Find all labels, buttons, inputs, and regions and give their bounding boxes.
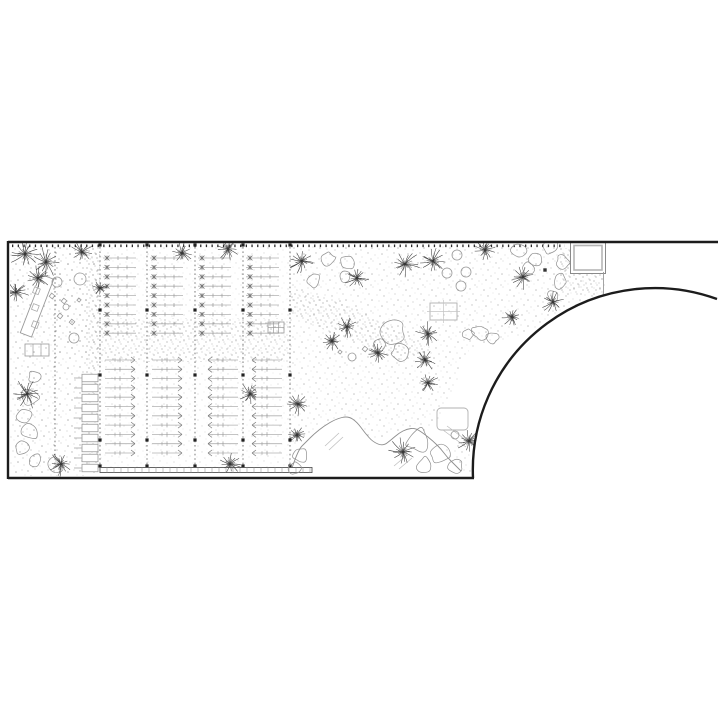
guide-post-node <box>98 438 101 441</box>
palm-trunk-center <box>522 276 524 278</box>
palm-trunk-center <box>552 301 554 303</box>
guide-post-node <box>145 243 148 246</box>
palm-trunk-center <box>296 434 298 436</box>
guide-post-node <box>98 308 101 311</box>
palm-trunk-center <box>249 393 251 395</box>
marker-square <box>543 268 546 271</box>
planter-box <box>82 384 98 392</box>
planter-box <box>82 444 98 452</box>
palm-trunk-center <box>404 263 406 265</box>
palm-trunk-center <box>427 333 429 335</box>
planter-box <box>82 374 98 382</box>
palm-trunk-center <box>331 340 333 342</box>
palm-trunk-center <box>81 251 83 253</box>
palm-trunk-center <box>60 463 62 465</box>
palm-trunk-center <box>24 253 26 255</box>
boardwalk-bar <box>100 468 312 473</box>
planter-box <box>82 394 98 402</box>
guide-post-node <box>98 243 101 246</box>
palm-trunk-center <box>402 451 404 453</box>
palm-frond <box>469 441 470 452</box>
palm-trunk-center <box>99 287 101 289</box>
palm-trunk-center <box>26 393 28 395</box>
guide-post-node <box>145 308 148 311</box>
guide-post-node <box>288 243 291 246</box>
palm-trunk-center <box>432 260 434 262</box>
site-plan-page <box>0 0 720 720</box>
palm-trunk-center <box>484 249 486 251</box>
guide-post-node <box>193 373 196 376</box>
site-plan-canvas <box>0 0 720 720</box>
palm-trunk-center <box>227 248 229 250</box>
palm-trunk-center <box>229 463 231 465</box>
palm-trunk-center <box>427 382 429 384</box>
planter-box <box>82 454 98 462</box>
palm-trunk-center <box>511 316 513 318</box>
planter-box <box>82 404 98 412</box>
palm-trunk-center <box>181 252 183 254</box>
guide-post-node <box>193 243 196 246</box>
guide-post-node <box>241 373 244 376</box>
guide-post-node <box>241 438 244 441</box>
pavilion-structure-inner <box>574 246 602 271</box>
palm-trunk-center <box>356 277 358 279</box>
palm-trunk-center <box>468 440 470 442</box>
palm-trunk-center <box>297 403 299 405</box>
guide-post-node <box>193 308 196 311</box>
guide-post-node <box>288 373 291 376</box>
palm-trunk-center <box>301 260 303 262</box>
palm-trunk-center <box>424 359 426 361</box>
guide-post-node <box>145 438 148 441</box>
guide-post-node <box>145 373 148 376</box>
guide-post-node <box>241 308 244 311</box>
guide-post-node <box>288 308 291 311</box>
palm-trunk-center <box>377 352 379 354</box>
guide-post-node <box>98 373 101 376</box>
palm-trunk-center <box>15 291 17 293</box>
planter-box <box>82 434 98 442</box>
guide-post-node <box>241 243 244 246</box>
palm-trunk-center <box>45 261 47 263</box>
palm-trunk-center <box>346 326 348 328</box>
guide-post-node <box>193 438 196 441</box>
planter-box <box>82 424 98 432</box>
planter-box <box>82 414 98 422</box>
palm-trunk-center <box>37 277 39 279</box>
gravel-stipple-area <box>55 250 100 355</box>
planter-box <box>82 464 98 472</box>
